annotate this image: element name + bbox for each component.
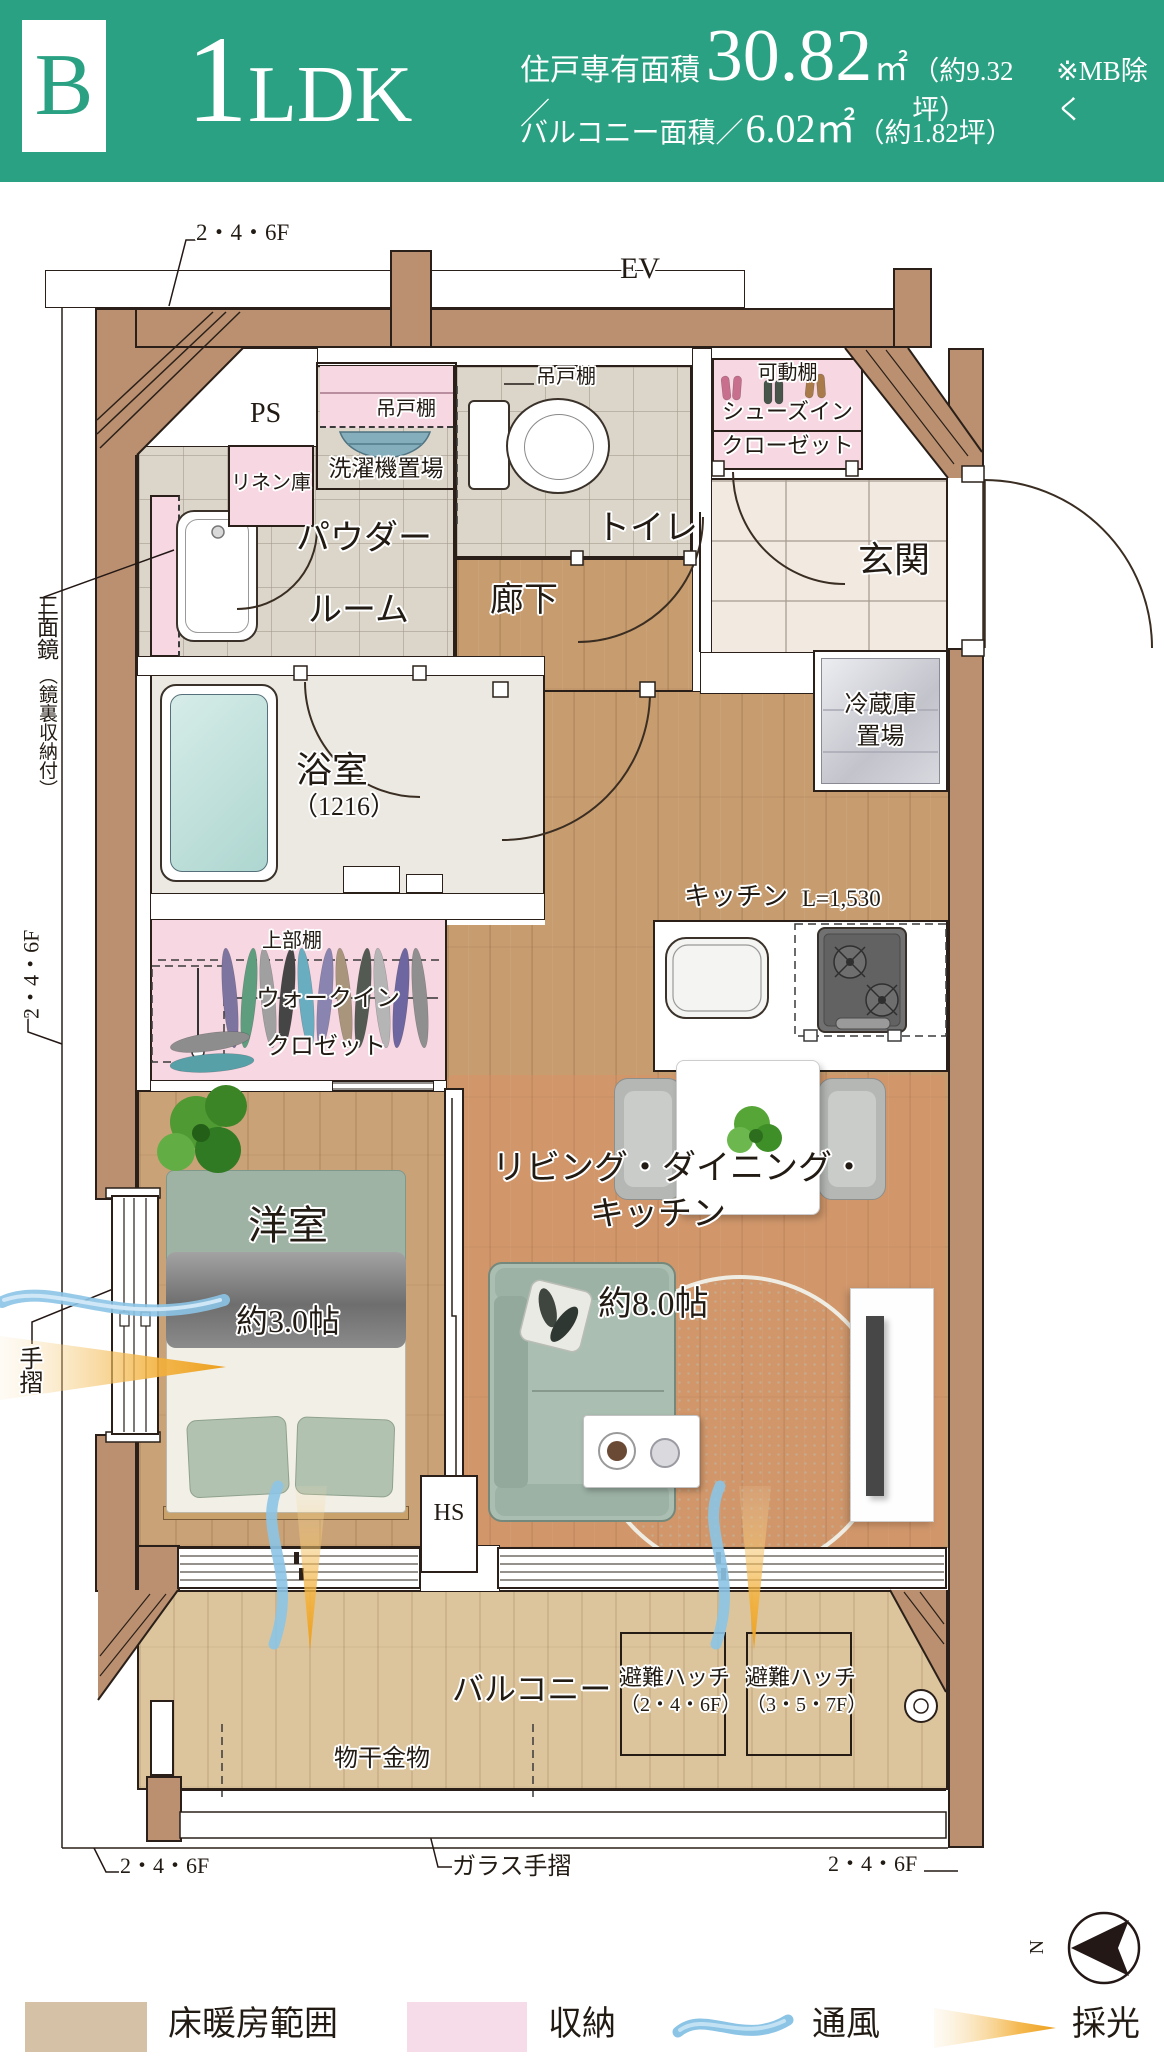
balcony-left-stub	[146, 1776, 182, 1842]
left-wall-upper	[95, 308, 137, 1200]
label-toilet: トイレ	[596, 510, 698, 548]
label-bedroom: 洋室	[248, 1204, 328, 1249]
top-wall-protrusion	[390, 250, 432, 348]
label-laundry: 洗濯機置場	[318, 456, 454, 482]
sic-divider	[714, 430, 861, 432]
legend-label-storage: 収納	[548, 2006, 616, 2044]
balcony-value: 6.02㎡	[745, 96, 855, 154]
legend-swatch-heating	[25, 2002, 147, 2052]
label-sic1: シューズイン	[712, 400, 863, 425]
mirror-line1: 三面鏡	[34, 594, 59, 660]
glass-railing	[180, 1790, 946, 1838]
label-movable-shelf: 可動棚	[712, 362, 863, 384]
kettle-icon	[650, 1438, 680, 1468]
label-compass-n: N	[1026, 1940, 1048, 1954]
wall-bath-wic	[150, 893, 545, 920]
label-wic1: ウォークイン	[256, 986, 400, 1013]
legend-swatch-storage	[407, 2002, 527, 2052]
kitchen-counter	[653, 920, 948, 1072]
balcony-partition	[150, 1700, 174, 1776]
label-handrail: 手摺	[14, 1346, 41, 1394]
top-wall	[95, 308, 910, 348]
label-powder2: ルーム	[308, 592, 409, 630]
plan-rest: LDK	[248, 50, 412, 141]
legend-light-icon	[934, 2008, 1056, 2048]
area-value: 30.82	[706, 14, 873, 99]
washbasin-inner	[185, 519, 249, 633]
label-hatch1-floors: （2・4・6F）	[620, 1694, 726, 1716]
label-floor-note-top: 2・4・6F	[196, 220, 289, 246]
right-wall-upper	[948, 348, 984, 478]
south-wall-stub	[137, 1545, 180, 1592]
label-wic-upper: 上部棚	[262, 930, 322, 952]
toilet-seat	[524, 414, 594, 480]
label-floor-note-left: 2・4・6F	[20, 924, 45, 1024]
coffee-table	[583, 1415, 700, 1488]
shelf-line	[320, 392, 453, 394]
wall-powder-bath	[137, 656, 545, 676]
balcony-tsubo: （約1.82坪）	[857, 111, 1012, 150]
label-ps: PS	[250, 398, 281, 429]
label-ldk-size: 約8.0帖	[598, 1286, 709, 1324]
legend-label-light: 採光	[1072, 2006, 1140, 2044]
sofa-back	[494, 1296, 528, 1488]
plan-num: 1	[186, 0, 248, 160]
bed-pillow-right	[295, 1416, 396, 1497]
label-fridge1: 冷蔵庫	[813, 692, 948, 719]
label-kitchen: キッチン	[684, 882, 788, 911]
area-unit: ㎡	[874, 41, 908, 90]
washbasin	[176, 510, 258, 642]
floorplan-page: B 1 LDK 住戸専有面積／ 30.82 ㎡ （約9.32坪） ※MB除く バ…	[0, 0, 1164, 2070]
label-ldk1: リビング・ダイニング・	[492, 1150, 824, 1188]
dining-table	[676, 1060, 820, 1215]
label-balcony: バルコニー	[452, 1672, 611, 1708]
tv-icon	[866, 1316, 884, 1496]
balcony-label: バルコニー面積／	[520, 111, 743, 151]
ps-zone	[137, 348, 318, 447]
fridge	[821, 658, 940, 784]
label-floor-note-bottom-right: 2・4・6F	[828, 1852, 917, 1877]
right-wall-lower	[948, 648, 984, 1848]
label-ldk2: キッチン	[492, 1196, 824, 1234]
label-sic2: クローゼット	[712, 434, 863, 459]
sofa-seat-line	[532, 1390, 664, 1392]
bath-counter1	[343, 866, 400, 893]
label-hatch2: 避難ハッチ	[746, 1666, 852, 1691]
wall-wic-bedroom-a	[150, 1080, 333, 1092]
sofa-arm-bottom	[495, 1484, 669, 1516]
label-corridor: 廊下	[490, 582, 558, 620]
coffee-icon	[607, 1441, 627, 1461]
label-fridge2: 置場	[813, 724, 948, 751]
label-kitchen-size: L=1,530	[802, 886, 881, 912]
left-wall-lower	[95, 1434, 137, 1592]
unit-letter: B	[35, 37, 94, 134]
label-mirror: 三面鏡 （鏡裏収納付）	[0, 594, 58, 834]
label-toilet-shelf: 吊戸棚	[536, 366, 596, 388]
label-ev: EV	[620, 252, 660, 286]
bath-counter2	[406, 874, 443, 893]
label-wic2: クロゼット	[266, 1034, 386, 1061]
label-hs: HS	[420, 1500, 478, 1527]
label-floor-note-bottom-left: 2・4・6F	[120, 1854, 209, 1879]
unit-badge: B	[22, 20, 106, 152]
label-linen: リネン庫	[230, 472, 312, 494]
label-hatch2-floors: （3・5・7F）	[746, 1694, 852, 1716]
toilet-bowl	[506, 398, 610, 494]
label-bedroom-size: 約3.0帖	[236, 1304, 340, 1340]
label-laundry-shelf: 吊戸棚	[362, 398, 450, 420]
legend-label-vent: 通風	[812, 2006, 880, 2044]
bed-pillow-left	[186, 1415, 290, 1498]
toilet-tank	[468, 400, 510, 490]
legend-vent-icon	[678, 2020, 788, 2032]
label-laundry-pole: 物干金物	[334, 1746, 430, 1773]
tv-console	[850, 1288, 934, 1522]
label-powder1: パウダー	[296, 520, 432, 558]
mirror-line2: （鏡裏収納付）	[36, 665, 57, 798]
window-south-bedroom	[178, 1548, 420, 1588]
ev-wall-protrusion	[893, 268, 932, 348]
legend-label-heating: 床暖房範囲	[168, 2006, 338, 2044]
plan-type: 1 LDK	[186, 0, 412, 182]
area-line2: バルコニー面積／ 6.02㎡ （約1.82坪）	[520, 96, 1160, 154]
bathtub-water	[170, 694, 268, 872]
compass-icon	[1069, 1913, 1139, 1983]
label-hatch1: 避難ハッチ	[620, 1666, 726, 1691]
label-glass-rail: ガラス手摺	[452, 1854, 572, 1881]
label-genkan: 玄関	[858, 540, 930, 580]
label-bath: 浴室	[296, 750, 368, 790]
label-bath-size: （1216）	[292, 792, 396, 821]
